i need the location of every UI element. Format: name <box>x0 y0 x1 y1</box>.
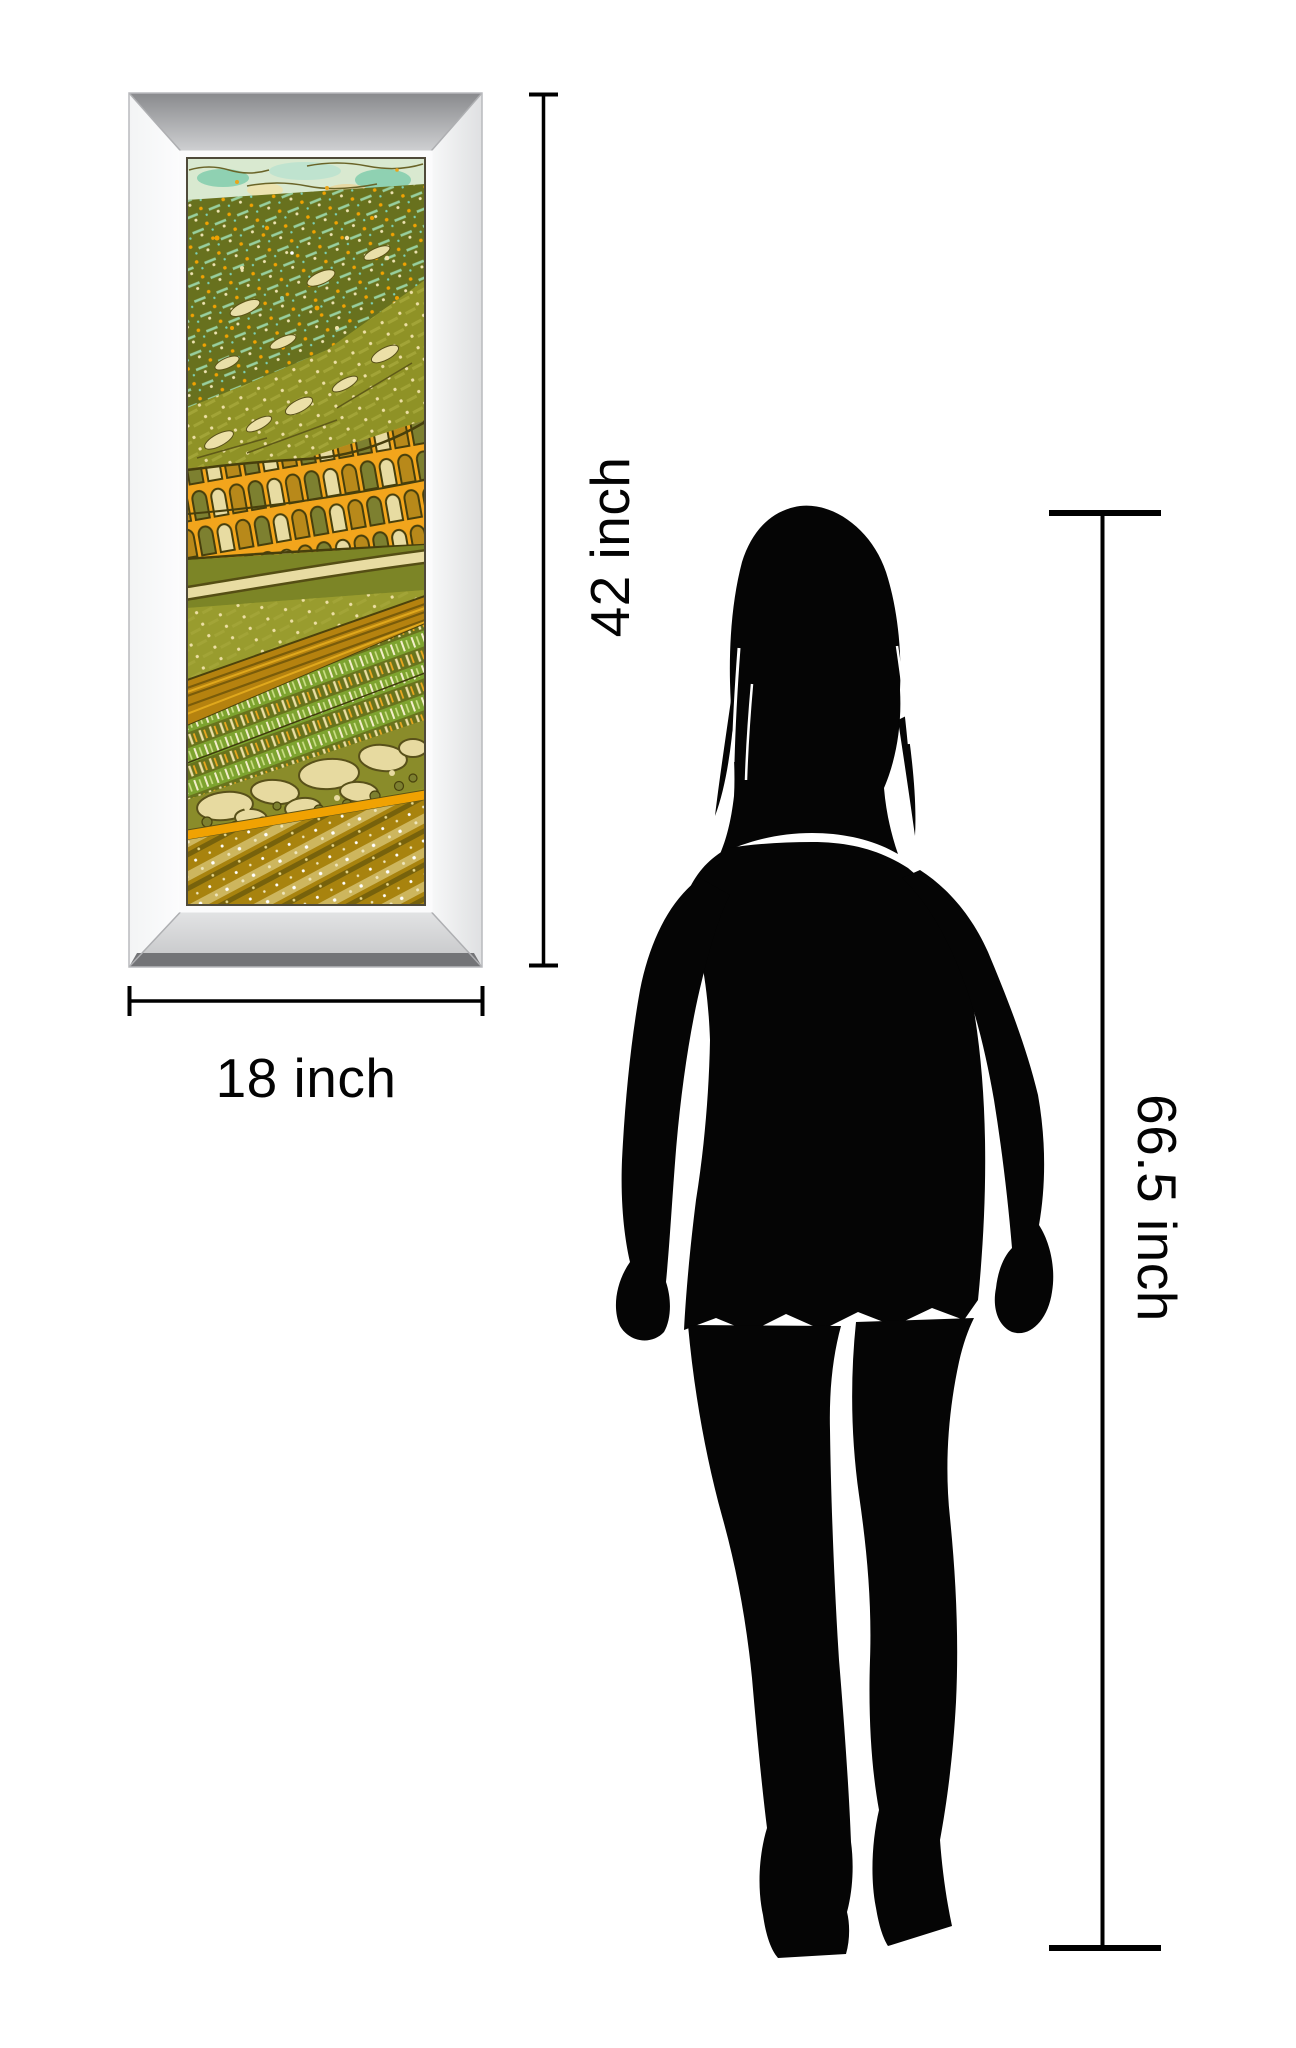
frame-bevel-top <box>129 93 482 158</box>
scene-svg <box>0 0 1296 2048</box>
silhouette-hair-strand-left <box>715 700 734 816</box>
silhouette-left-leg <box>688 1325 853 1958</box>
art-height-dimension-line <box>529 95 558 966</box>
frame-bottom-shadow-edge <box>129 953 482 967</box>
frame-bevel-right <box>425 93 482 967</box>
frame-bevel-left <box>129 93 187 967</box>
framed-artwork <box>129 93 482 967</box>
person-height-label: 66.5 inch <box>1125 1094 1189 1322</box>
woman-silhouette-icon <box>616 506 1053 1958</box>
silhouette-head <box>720 506 900 854</box>
art-height-label: 42 inch <box>578 457 642 638</box>
art-width-label: 18 inch <box>216 1046 397 1110</box>
artwork-image <box>183 158 429 905</box>
silhouette-hair-strand-right <box>898 716 915 836</box>
size-comparison-diagram: 42 inch 18 inch 66.5 inch <box>0 0 1296 2048</box>
art-width-dimension-line <box>130 986 483 1016</box>
silhouette-right-leg <box>852 1318 974 1946</box>
